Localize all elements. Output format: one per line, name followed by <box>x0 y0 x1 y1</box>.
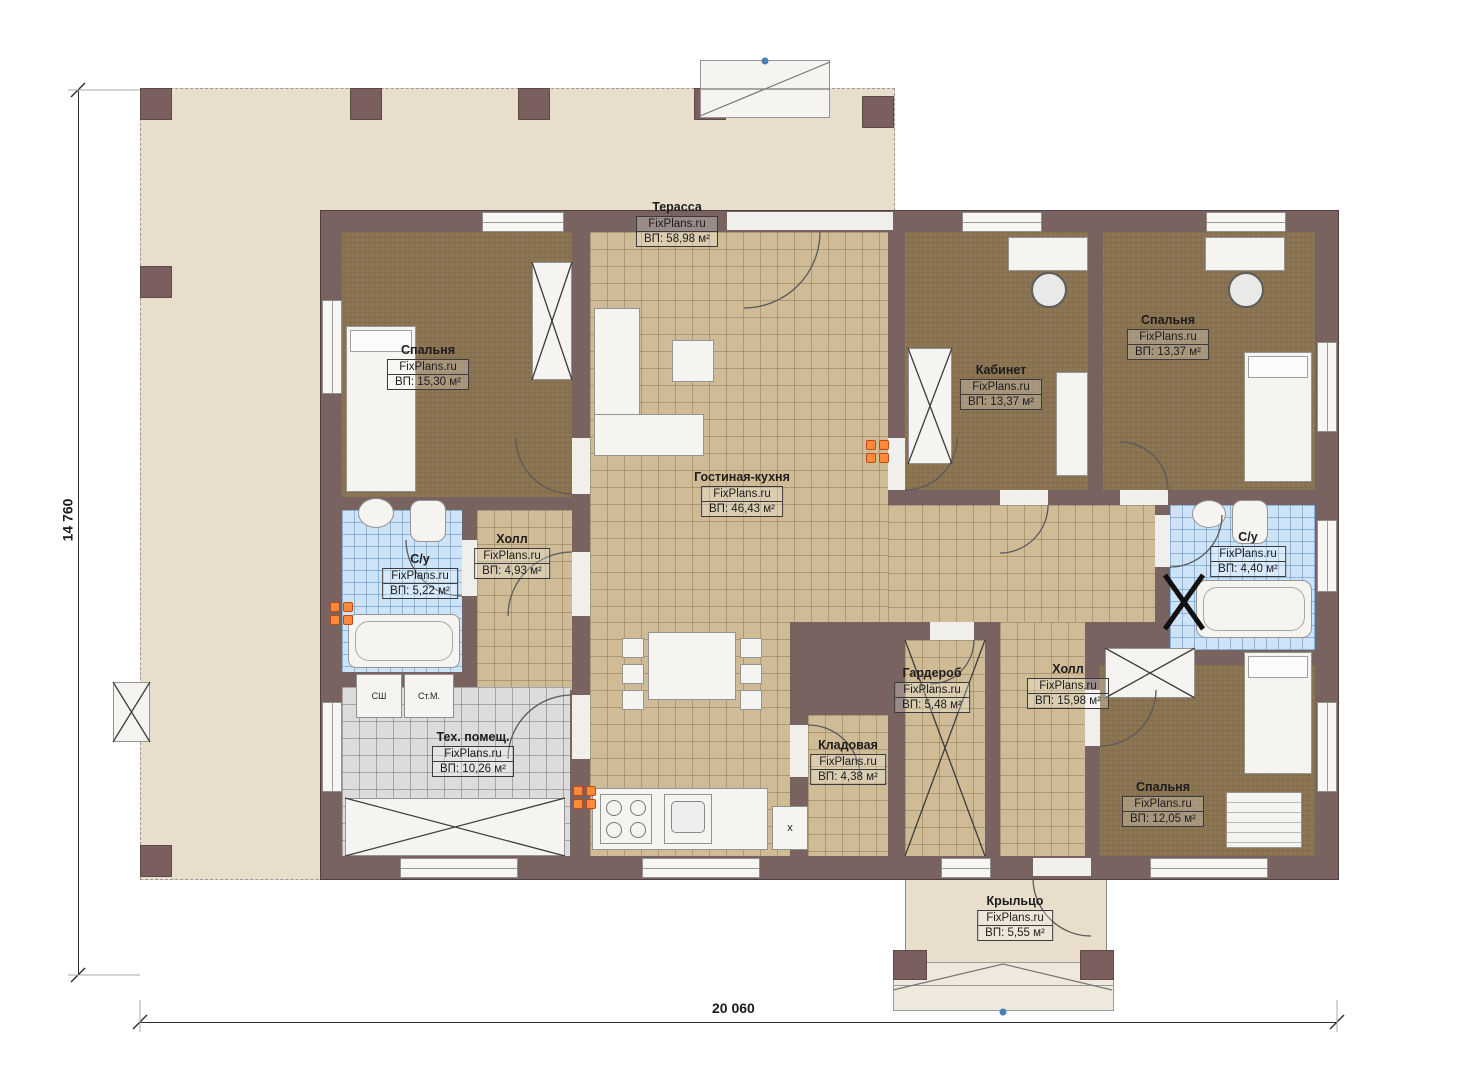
terrace-post <box>140 88 172 120</box>
window <box>962 212 1042 232</box>
dimension-label-vertical: 14 760 <box>59 499 75 542</box>
window <box>482 212 564 232</box>
room-floor-pantry <box>808 715 888 856</box>
dresser-icon <box>1226 792 1302 848</box>
drying-cabinet-box: СШ <box>356 674 402 718</box>
bathtub-icon <box>348 614 460 668</box>
washing-machine-label: Ст.М. <box>418 691 440 701</box>
room-label-bath-left: С/у FixPlans.ru ВП: 5,22 м² <box>382 552 458 599</box>
door-opening-bath-right <box>1155 515 1170 567</box>
terrace-post <box>518 88 550 120</box>
room-area: ВП: 58,98 м² <box>637 232 717 246</box>
window <box>941 858 991 878</box>
room-floor-corridor-band <box>888 505 1155 622</box>
terrace-post <box>140 266 172 298</box>
washing-machine-box: Ст.М. <box>404 674 454 718</box>
room-label-bedroom-br: Спальня FixPlans.ru ВП: 12,05 м² <box>1122 780 1204 827</box>
terrace-door-opening <box>727 212 893 230</box>
door-opening-wardrobe <box>930 622 974 640</box>
office-chair-icon <box>1228 272 1264 308</box>
room-label-hall-right: Холл FixPlans.ru ВП: 15,98 м² <box>1027 662 1109 709</box>
window <box>1206 212 1286 232</box>
floor-plan: x СШ Ст.М. <box>0 0 1474 1080</box>
dimension-line-horizontal <box>140 1022 1337 1023</box>
chair-icon <box>740 664 762 684</box>
window <box>642 858 760 878</box>
room-label-tech: Тех. помещ. FixPlans.ru ВП: 10,26 м² <box>432 730 514 777</box>
terrace-post <box>140 845 172 877</box>
chair-icon <box>622 664 644 684</box>
chair-icon <box>740 638 762 658</box>
sink-icon <box>1192 500 1226 528</box>
drying-cabinet-label: СШ <box>372 691 387 701</box>
wardrobe-crossed-box <box>532 262 572 380</box>
dimension-label-horizontal: 20 060 <box>712 1000 755 1016</box>
bed-icon <box>1244 652 1312 774</box>
sink-icon <box>358 498 394 528</box>
wardrobe-crossed-box <box>908 348 952 464</box>
wardrobe-crossed-box <box>1105 648 1195 698</box>
coffee-table-icon <box>672 340 714 382</box>
socket-icon <box>866 440 889 463</box>
room-label-terrace: Терасса FixPlans.ru ВП: 58,98 м² <box>636 200 718 247</box>
room-label-bedroom-tl: Спальня FixPlans.ru ВП: 15,30 м² <box>387 343 469 390</box>
kitchen-sink-icon <box>664 794 712 844</box>
chair-icon <box>622 690 644 710</box>
dimension-line-vertical <box>78 90 79 975</box>
kitchen-unit-marker: x <box>772 806 808 850</box>
socket-icon <box>330 602 353 625</box>
room-label-bedroom-tr: Спальня FixPlans.ru ВП: 13,37 м² <box>1127 313 1209 360</box>
toilet-icon <box>410 500 446 542</box>
sofa-icon <box>1056 372 1088 476</box>
desk-icon <box>1008 237 1088 271</box>
porch-post <box>893 950 927 980</box>
room-label-hall-left: Холл FixPlans.ru ВП: 4,93 м² <box>474 532 550 579</box>
window <box>1317 342 1337 432</box>
window <box>322 702 342 792</box>
bathtub-icon <box>1196 580 1312 638</box>
socket-icon <box>573 786 596 809</box>
dining-table-icon <box>648 632 736 700</box>
room-label-office: Кабинет FixPlans.ru ВП: 13,37 м² <box>960 363 1042 410</box>
door-opening-bedroom-tr <box>1120 490 1168 505</box>
window <box>322 300 342 394</box>
door-opening-pantry <box>790 725 808 777</box>
room-label-porch: Крыльцо FixPlans.ru ВП: 5,55 м² <box>977 894 1053 941</box>
bed-icon <box>1244 352 1312 482</box>
terrace-post <box>350 88 382 120</box>
desk-icon <box>1205 237 1285 271</box>
stove-icon <box>600 794 652 844</box>
terrace-post <box>862 96 894 128</box>
terrace-steps-left <box>113 682 150 742</box>
window <box>1150 858 1268 878</box>
room-label-wardrobe: Гардероб FixPlans.ru ВП: 5,48 м² <box>894 666 970 713</box>
office-chair-icon <box>1031 272 1067 308</box>
door-opening-office <box>888 438 905 490</box>
kitchen-unit-marker-label: x <box>787 822 793 834</box>
window <box>1317 702 1337 792</box>
door-opening-tech <box>572 695 590 759</box>
porch-step <box>893 985 1114 1011</box>
room-label-living-kitchen: Гостиная-кухня FixPlans.ru ВП: 46,43 м² <box>694 470 790 517</box>
sofa-icon <box>594 414 704 456</box>
porch-post <box>1080 950 1114 980</box>
door-opening-office-band <box>1000 490 1048 505</box>
room-floor-hall-right <box>1000 622 1085 856</box>
door-opening-hall-left <box>572 552 590 616</box>
room-name: Терасса <box>636 200 718 214</box>
porch-door-opening <box>1033 858 1091 876</box>
window <box>1317 520 1337 592</box>
chair-icon <box>740 690 762 710</box>
reserved-crossed-box <box>345 798 565 856</box>
room-label-bath-right: С/у FixPlans.ru ВП: 4,40 м² <box>1210 530 1286 577</box>
window <box>400 858 518 878</box>
chair-icon <box>622 638 644 658</box>
door-opening-bedroom-tl <box>572 438 590 494</box>
watermark-text: FixPlans.ru <box>637 217 717 232</box>
room-label-pantry: Кладовая FixPlans.ru ВП: 4,38 м² <box>810 738 886 785</box>
terrace-steps-top <box>700 60 830 118</box>
